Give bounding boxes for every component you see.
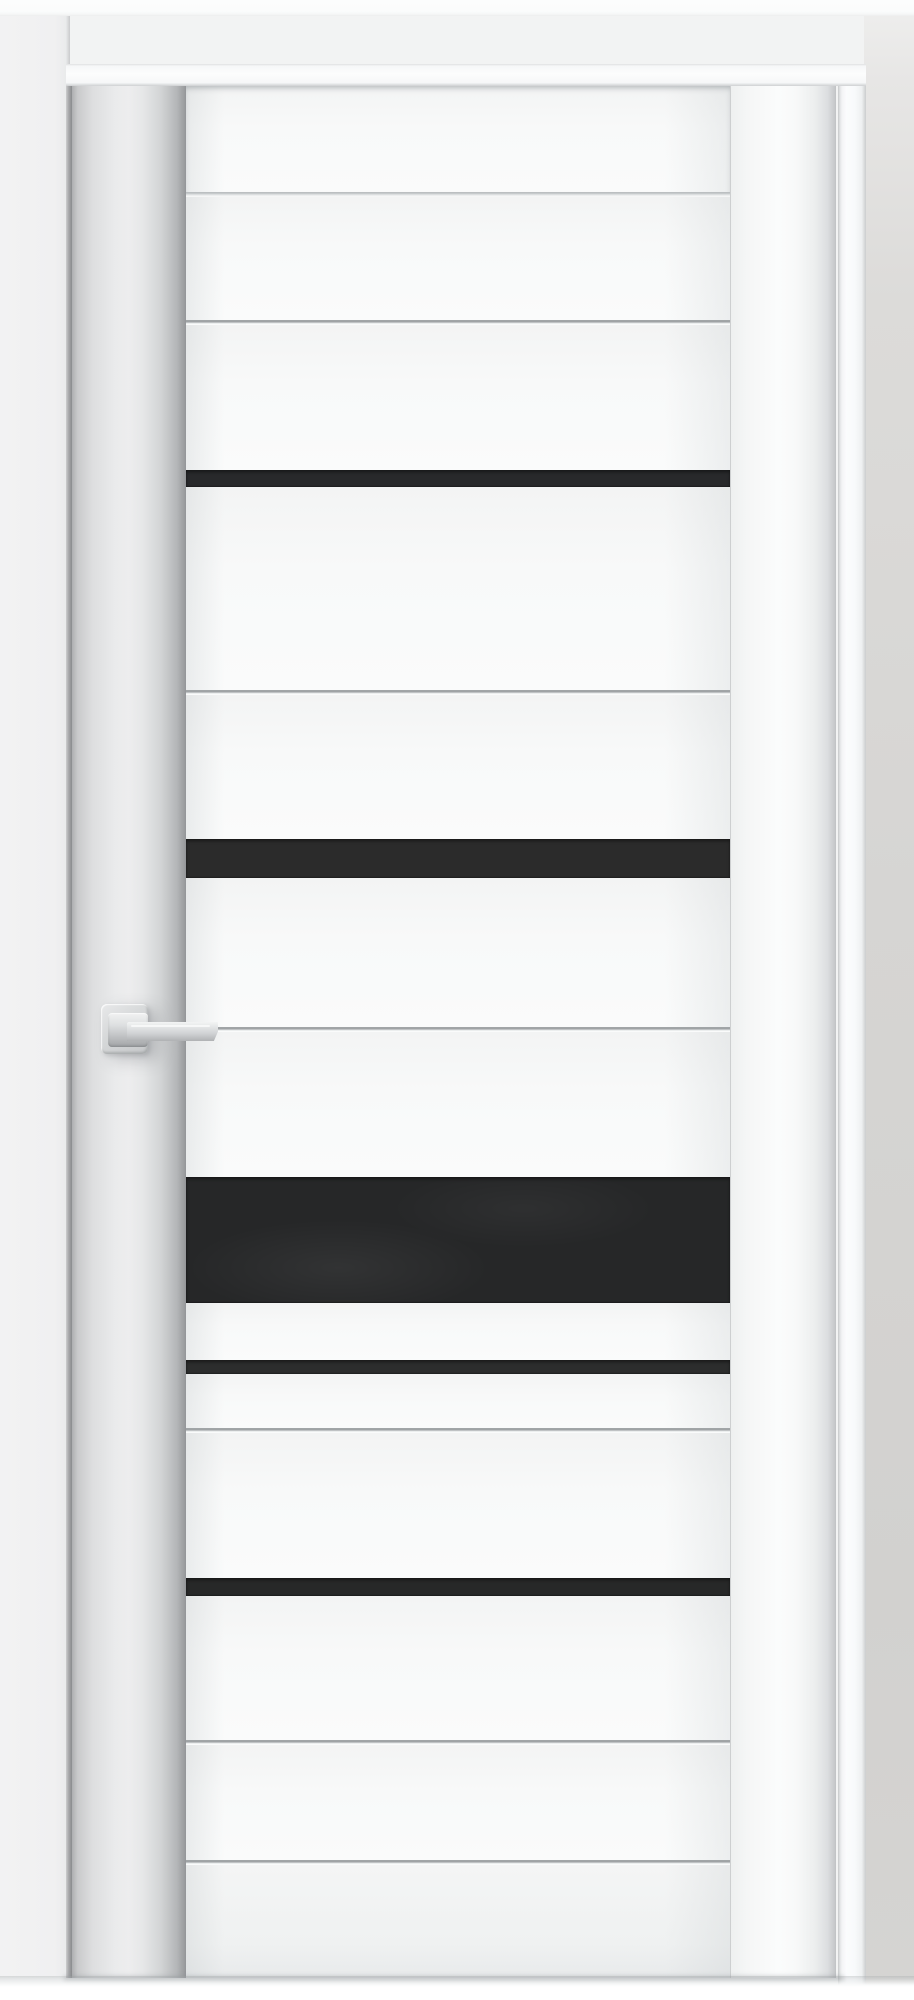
door-casing-top [66,64,866,86]
handle-lever [127,1022,218,1041]
board-11 [186,1745,730,1860]
top-rail [186,86,730,192]
door-stile-right [730,86,836,1978]
glass-insert-5 [186,1578,730,1596]
wall-left [0,0,70,1976]
glass-insert-2 [186,839,730,878]
door-product-photo [0,0,914,2000]
board-5 [186,878,730,1027]
board-1 [186,197,730,320]
board-6 [186,1032,730,1177]
board-8 [186,1374,730,1428]
board-7 [186,1303,730,1360]
glass-insert-4 [186,1360,730,1374]
bottom-rail [186,1865,730,1978]
door-jamb-right [838,64,866,1990]
glass-insert-1 [186,470,730,487]
board-4 [186,695,730,839]
glass-insert-3-wide [186,1177,730,1303]
ceiling-strip [0,0,914,16]
board-2 [186,325,730,470]
board-9 [186,1433,730,1578]
floor [0,1976,914,2000]
board-3 [186,487,730,690]
wall-right [864,0,914,1990]
board-10 [186,1596,730,1740]
door-panel-stack [186,86,730,1978]
